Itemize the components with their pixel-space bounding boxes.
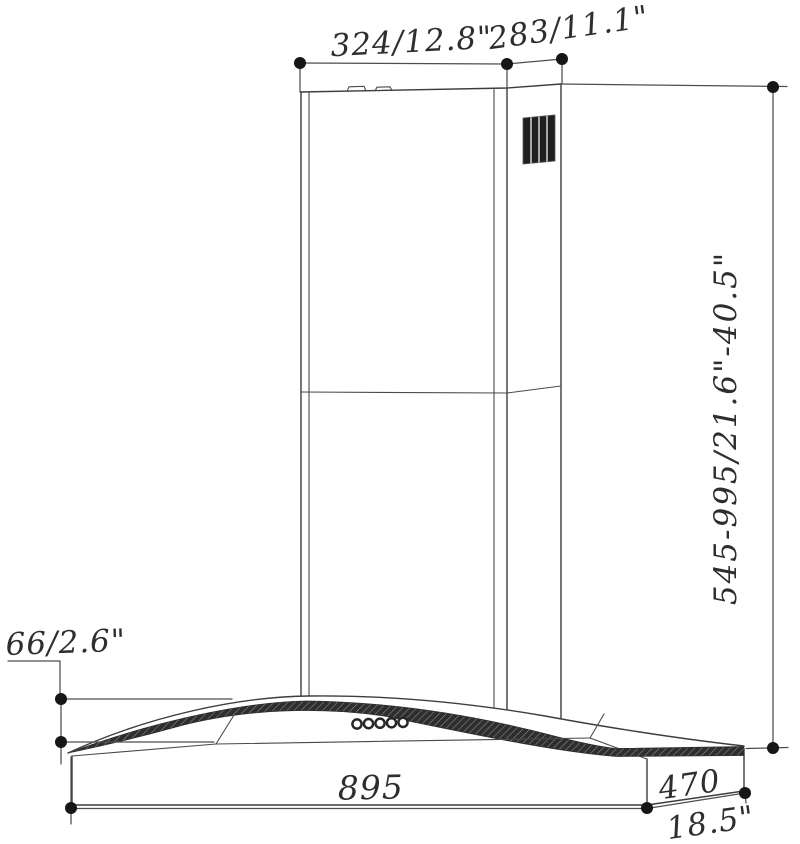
chimney-side-face [507,84,561,730]
leader-body-height [8,661,60,700]
chimney-duct-cover [301,84,561,730]
control-button [387,718,396,727]
control-button [398,718,407,727]
dim-body-width-label: 895 [337,767,404,807]
range-hood-dimension-diagram: 324/12.8" 283/11.1" 545-995/21.6"-40.5" … [0,0,800,844]
ext-line-top-right [561,84,787,87]
chimney-front-face [301,88,507,725]
vent-grille [523,115,555,164]
glass-canopy [68,696,746,805]
control-button [364,719,373,728]
dim-body-depth-inch-label: 18.5" [664,799,756,844]
dim-chimney-depth-label: 283/11.1" [485,0,651,57]
dim-mount-height-range-label: 545-995/21.6"-40.5" [708,251,744,605]
diagram-canvas: 324/12.8" 283/11.1" 545-995/21.6"-40.5" … [0,0,800,844]
dim-body-depth-mm-label: 470 [655,763,723,807]
dim-chimney-width-label: 324/12.8" [330,20,494,64]
dim-body-height-label: 66/2.6" [5,623,127,663]
control-button [375,719,384,728]
control-button [352,719,361,728]
